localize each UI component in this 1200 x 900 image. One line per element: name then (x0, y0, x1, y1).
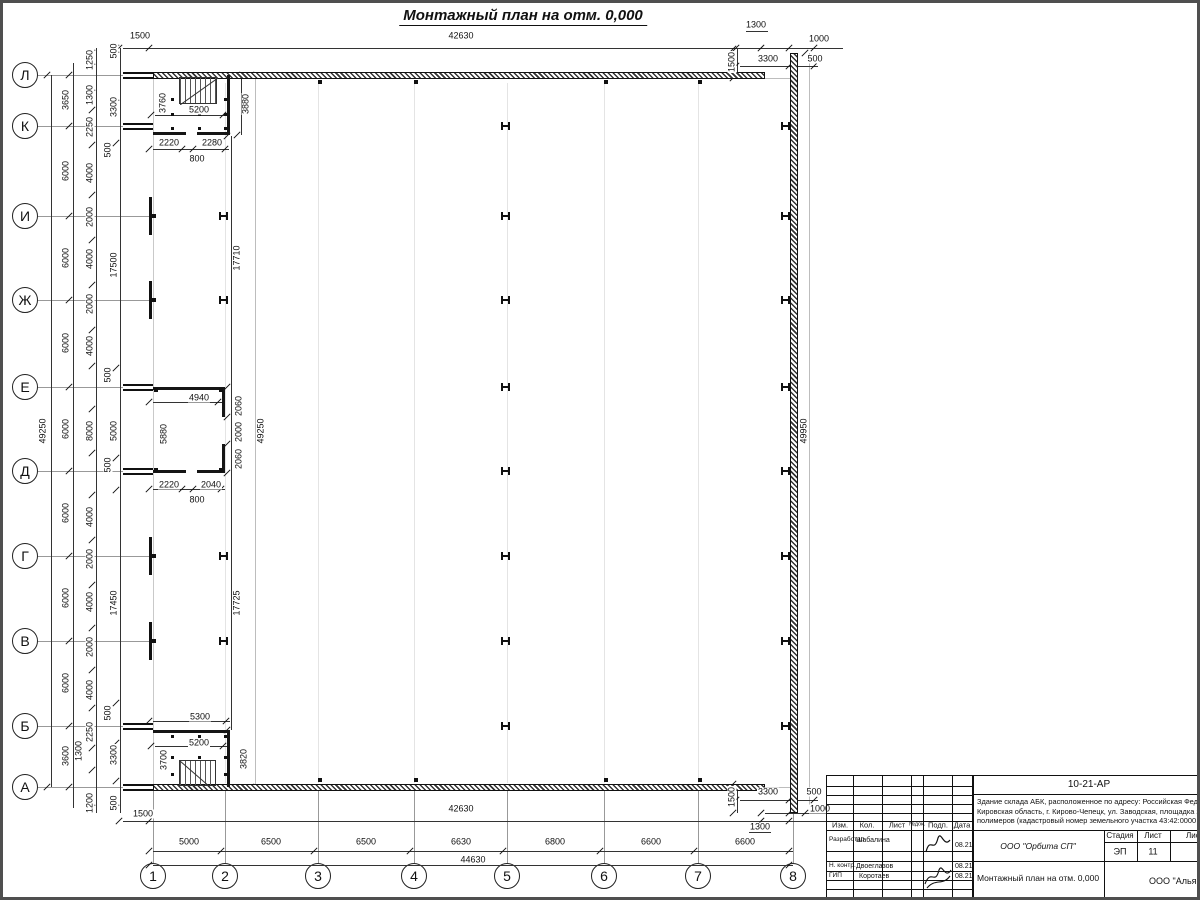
dim-label: 1500 (728, 786, 737, 808)
dimension-tick (112, 454, 119, 461)
tb-name-3: Коротаев (859, 873, 889, 880)
dimension-tick (145, 145, 152, 152)
dim-label: 2250 (86, 116, 95, 138)
dim-label: 2000 (86, 206, 95, 228)
wall-column-icon (149, 197, 152, 235)
axis-extension-line (765, 78, 791, 79)
axis-line (604, 791, 605, 863)
column-dot (171, 773, 174, 776)
tb-name-2: Двоеглазов (856, 863, 893, 870)
dim-label: 1300 (749, 823, 771, 832)
dim-label: 500 (110, 42, 119, 59)
tb-stage-label: Стадия (1106, 832, 1133, 840)
grid-guide-line (507, 83, 508, 783)
dim-label: 500 (104, 704, 113, 721)
dimension-tick (729, 809, 736, 816)
tb-sheets-label: Листов (1186, 832, 1200, 840)
dim-label: 3600 (62, 745, 71, 767)
column-dot (224, 735, 227, 738)
tb-line (972, 861, 1200, 862)
dimension-line (120, 48, 121, 813)
grid-guide-line (604, 83, 605, 783)
steel-column-icon (219, 212, 228, 220)
axis-circle-col: 2 (212, 863, 238, 889)
dimension-tick (757, 809, 764, 816)
column-anchor-dot (604, 80, 608, 84)
dimension-tick (115, 817, 122, 824)
wall-pilaster (123, 123, 153, 130)
dimension-tick (145, 847, 152, 854)
column-dot (224, 113, 227, 116)
dim-label: 17500 (110, 251, 119, 278)
drawing-sheet: Монтажный план на отм. 0,000 ЛКИЖЕДГВБА1… (0, 0, 1200, 900)
dimension-tick (88, 449, 95, 456)
column-anchor-dot (698, 80, 702, 84)
dim-label: 6630 (450, 838, 472, 847)
stairs (179, 760, 216, 786)
dim-label: 2060 (235, 395, 244, 417)
wall-hatched (153, 784, 765, 791)
dimension-tick (88, 191, 95, 198)
dim-label: 500 (104, 456, 113, 473)
grid-guide-line (698, 83, 699, 783)
wall-segment (227, 75, 230, 135)
dim-label: 800 (188, 496, 205, 505)
wall-pilaster (123, 72, 153, 79)
steel-column-icon (781, 383, 790, 391)
dim-label: 1500 (129, 32, 151, 41)
tb-line (827, 795, 972, 796)
steel-column-icon (501, 637, 510, 645)
dim-label: 500 (806, 55, 823, 64)
dimension-line (153, 865, 793, 866)
tb-line (1104, 842, 1200, 843)
tb-date-1: 08.21 (955, 842, 973, 849)
wall-segment (222, 390, 225, 417)
dim-label: 17450 (110, 589, 119, 616)
dimension-tick (145, 398, 152, 405)
column-dot (171, 113, 174, 116)
steel-column-icon (501, 467, 510, 475)
dim-label: 2040 (200, 481, 222, 490)
dim-label: 49250 (257, 417, 266, 444)
wall-column-icon (149, 537, 152, 575)
dimension-line (740, 66, 818, 67)
tb-description-line: полимеров (кадастровый номер земельного … (977, 816, 1200, 826)
column-dot (171, 735, 174, 738)
tb-org2: ООО "Альянс (1149, 877, 1200, 886)
column-anchor-dot (604, 778, 608, 782)
dim-label: 3760 (159, 92, 168, 114)
dim-label: 500 (110, 794, 119, 811)
axis-circle-row: Д (12, 458, 38, 484)
tb-col-izm: Изм. (832, 821, 848, 829)
dimension-tick (88, 766, 95, 773)
tb-doc-number: 10-21-АР (1068, 780, 1110, 790)
steel-column-icon (781, 722, 790, 730)
steel-column-icon (501, 122, 510, 130)
dim-label: 6000 (62, 160, 71, 182)
tb-line (827, 813, 972, 814)
steel-column-icon (781, 552, 790, 560)
wall-segment (197, 132, 228, 135)
dimension-line (740, 800, 818, 801)
dim-label: 4000 (86, 162, 95, 184)
dim-label: 2000 (235, 421, 244, 443)
dimension-line (746, 31, 768, 32)
tb-line (1137, 830, 1138, 861)
column-dot (171, 756, 174, 759)
steel-column-icon (501, 383, 510, 391)
dimension-tick (88, 536, 95, 543)
tb-line (827, 786, 972, 787)
dim-label: 2000 (86, 548, 95, 570)
dim-label: 6800 (544, 838, 566, 847)
dimension-tick (88, 236, 95, 243)
wall-segment (227, 730, 230, 787)
axis-circle-col: 6 (591, 863, 617, 889)
axis-circle-row: А (12, 774, 38, 800)
dim-label: 3300 (110, 96, 119, 118)
dim-label: 800 (188, 155, 205, 164)
grid-guide-line (414, 83, 415, 783)
steel-column-icon (781, 467, 790, 475)
tb-col-kol: Кол. (860, 821, 875, 829)
dimension-line (153, 851, 793, 852)
steel-column-icon (219, 296, 228, 304)
wall-segment (153, 132, 186, 135)
dimension-line (749, 832, 771, 833)
dim-label: 500 (104, 141, 113, 158)
dimension-tick (233, 131, 240, 138)
axis-circle-row: Ж (12, 287, 38, 313)
tb-col-podp: Подп. (928, 821, 948, 829)
column-anchor-dot (219, 388, 223, 392)
axis-line (153, 791, 154, 863)
dim-label: 3700 (160, 749, 169, 771)
tb-org: ООО "Орбита СП" (1000, 842, 1075, 851)
axis-circle-col: 5 (494, 863, 520, 889)
dim-label: 4000 (86, 591, 95, 613)
axis-circle-row: В (12, 628, 38, 654)
column-anchor-dot (318, 778, 322, 782)
tb-sheet-label: Лист (1144, 832, 1161, 840)
dimension-tick (88, 491, 95, 498)
dimension-line (73, 63, 74, 808)
dim-label: 42630 (447, 32, 474, 41)
wall-segment (153, 387, 225, 390)
tb-col-ndoc: №док. (909, 822, 925, 828)
dim-label: 1300 (75, 740, 84, 762)
dimension-tick (88, 704, 95, 711)
wall-column-icon (149, 281, 152, 319)
tb-sheets-value: 1 (1196, 848, 1200, 857)
dim-label: 8000 (86, 420, 95, 442)
steel-column-icon (501, 296, 510, 304)
column-anchor-dot (414, 80, 418, 84)
steel-column-icon (501, 722, 510, 730)
dimension-tick (112, 486, 119, 493)
dim-label: 6500 (260, 838, 282, 847)
dim-label: 500 (805, 788, 822, 797)
dim-label: 5880 (160, 423, 169, 445)
dim-label: 1200 (86, 792, 95, 814)
dim-label: 3820 (240, 748, 249, 770)
column-dot (171, 98, 174, 101)
dimension-tick (112, 364, 119, 371)
column-anchor-dot (318, 80, 322, 84)
dimension-tick (88, 326, 95, 333)
axis-extension-line (809, 53, 810, 813)
tb-line (1170, 830, 1171, 861)
dimension-tick (112, 699, 119, 706)
dimension-tick (88, 744, 95, 751)
column-dot (224, 127, 227, 130)
dim-label: 2000 (86, 293, 95, 315)
axis-extension-line (153, 75, 154, 787)
dim-label: 4000 (86, 679, 95, 701)
dim-label: 4000 (86, 335, 95, 357)
column-dot (224, 98, 227, 101)
wall-pilaster (123, 723, 153, 730)
tb-line (827, 804, 972, 805)
dimension-tick (88, 624, 95, 631)
tb-col-data: Дата (954, 821, 971, 829)
column-dot (224, 773, 227, 776)
dim-label: 2000 (86, 636, 95, 658)
tb-col-list: Лист (889, 821, 905, 829)
axis-circle-row: Г (12, 543, 38, 569)
dim-label: 42630 (447, 805, 474, 814)
wall-segment (153, 730, 230, 733)
dim-label: 6000 (62, 502, 71, 524)
dim-label: 1300 (86, 84, 95, 106)
column-anchor-dot (219, 468, 223, 472)
axis-line (225, 791, 226, 863)
dim-label: 6000 (62, 418, 71, 440)
grid-guide-line (318, 83, 319, 783)
dimension-line (231, 387, 232, 473)
axis-line (698, 791, 699, 863)
dimension-tick (112, 777, 119, 784)
axis-circle-col: 1 (140, 863, 166, 889)
signature-icon (924, 832, 952, 856)
dimension-tick (88, 405, 95, 412)
column-anchor-dot (414, 778, 418, 782)
dim-label: 500 (104, 366, 113, 383)
dim-label: 4000 (86, 248, 95, 270)
tb-line (1104, 830, 1105, 900)
tb-drawing-title: Монтажный план на отм. 0,000 (977, 874, 1099, 883)
steel-column-icon (501, 212, 510, 220)
tb-description: Здание склада АБК, расположенное по адре… (977, 797, 1200, 826)
steel-column-icon (781, 122, 790, 130)
stairs (179, 77, 217, 104)
steel-column-icon (501, 552, 510, 560)
axis-circle-row: И (12, 203, 38, 229)
dim-label: 5200 (188, 739, 210, 748)
wall-pilaster (123, 468, 153, 475)
tb-date-3: 08.21 (955, 873, 973, 880)
dimension-tick (88, 666, 95, 673)
tb-role-3: ГИП (829, 873, 842, 880)
dim-label: 5000 (178, 838, 200, 847)
dim-label: 1500 (728, 51, 737, 73)
axis-circle-row: К (12, 113, 38, 139)
wall-pilaster (123, 784, 153, 791)
tb-sheet-value: 11 (1148, 848, 1157, 857)
column-dot (224, 756, 227, 759)
dimension-tick (88, 281, 95, 288)
axis-circle-col: 7 (685, 863, 711, 889)
dim-label: 6000 (62, 247, 71, 269)
dimension-tick (88, 106, 95, 113)
axis-circle-col: 8 (780, 863, 806, 889)
dim-label: 2280 (201, 139, 223, 148)
tb-date-2: 08.21 (955, 863, 973, 870)
dim-label: 6500 (355, 838, 377, 847)
dimension-line (96, 48, 97, 813)
wall-pilaster (123, 384, 153, 391)
dim-label: 6000 (62, 672, 71, 694)
tb-role-2: Н. контр. (829, 863, 856, 870)
dim-label: 6600 (734, 838, 756, 847)
dim-label: 1250 (86, 49, 95, 71)
dimension-line (155, 115, 227, 116)
dim-label: 3880 (242, 93, 251, 115)
wall-hatched (153, 72, 765, 79)
dim-label: 5000 (110, 420, 119, 442)
axis-line (507, 791, 508, 863)
dim-label: 49950 (800, 417, 809, 444)
dim-label: 6000 (62, 587, 71, 609)
dimension-line (123, 821, 843, 822)
dim-label: 2220 (158, 481, 180, 490)
dim-label: 1000 (808, 35, 830, 44)
dim-label: 6000 (62, 332, 71, 354)
column-anchor-dot (154, 388, 158, 392)
wall-hatched (790, 53, 798, 813)
tb-description-line: Здание склада АБК, расположенное по адре… (977, 797, 1200, 807)
dim-label: 1500 (132, 810, 154, 819)
dimension-tick (112, 139, 119, 146)
dim-label: 3650 (62, 89, 71, 111)
dim-label: 1300 (745, 21, 767, 30)
tb-line (972, 794, 1200, 795)
dimension-tick (88, 362, 95, 369)
dim-label: 2220 (158, 139, 180, 148)
dim-label: 3300 (110, 744, 119, 766)
axis-circle-row: Б (12, 713, 38, 739)
dimension-tick (88, 141, 95, 148)
wall-column-icon (149, 622, 152, 660)
column-anchor-dot (154, 468, 158, 472)
tb-description-line: Кировская область, г. Кирово-Чепецк, ул.… (977, 807, 1200, 817)
dim-label: 4000 (86, 506, 95, 528)
dim-label: 44630 (459, 856, 486, 865)
title-block: Изм. Кол. Лист №док. Подп. Дата Разработ… (826, 775, 1200, 900)
axis-circle-row: Е (12, 374, 38, 400)
dim-label: 5200 (188, 106, 210, 115)
tb-stage-value: ЭП (1114, 848, 1127, 857)
dim-label: 6600 (640, 838, 662, 847)
dim-label: 5300 (189, 713, 211, 722)
dim-label: 4940 (188, 394, 210, 403)
dim-label: 49250 (39, 417, 48, 444)
dim-label: 3300 (757, 788, 779, 797)
dim-label: 2060 (235, 448, 244, 470)
signature-icon (923, 860, 953, 890)
steel-column-icon (781, 296, 790, 304)
drawing-title: Монтажный план на отм. 0,000 (399, 7, 647, 26)
dim-label: 17710 (233, 244, 242, 271)
column-dot (198, 127, 201, 130)
dimension-line (51, 75, 52, 787)
dim-label: 3300 (757, 55, 779, 64)
tb-name-1: Шабалина (856, 837, 890, 844)
column-dot (198, 756, 201, 759)
dim-label: 2250 (86, 721, 95, 743)
axis-line (318, 791, 319, 863)
grid-guide-line (225, 83, 226, 783)
steel-column-icon (781, 637, 790, 645)
steel-column-icon (781, 212, 790, 220)
column-dot (171, 127, 174, 130)
steel-column-icon (219, 637, 228, 645)
dimension-tick (145, 485, 152, 492)
axis-line (414, 791, 415, 863)
steel-column-icon (219, 552, 228, 560)
axis-circle-col: 4 (401, 863, 427, 889)
column-anchor-dot (698, 778, 702, 782)
dim-label: 17725 (233, 589, 242, 616)
dimension-tick (88, 581, 95, 588)
axis-circle-col: 3 (305, 863, 331, 889)
axis-circle-row: Л (12, 62, 38, 88)
